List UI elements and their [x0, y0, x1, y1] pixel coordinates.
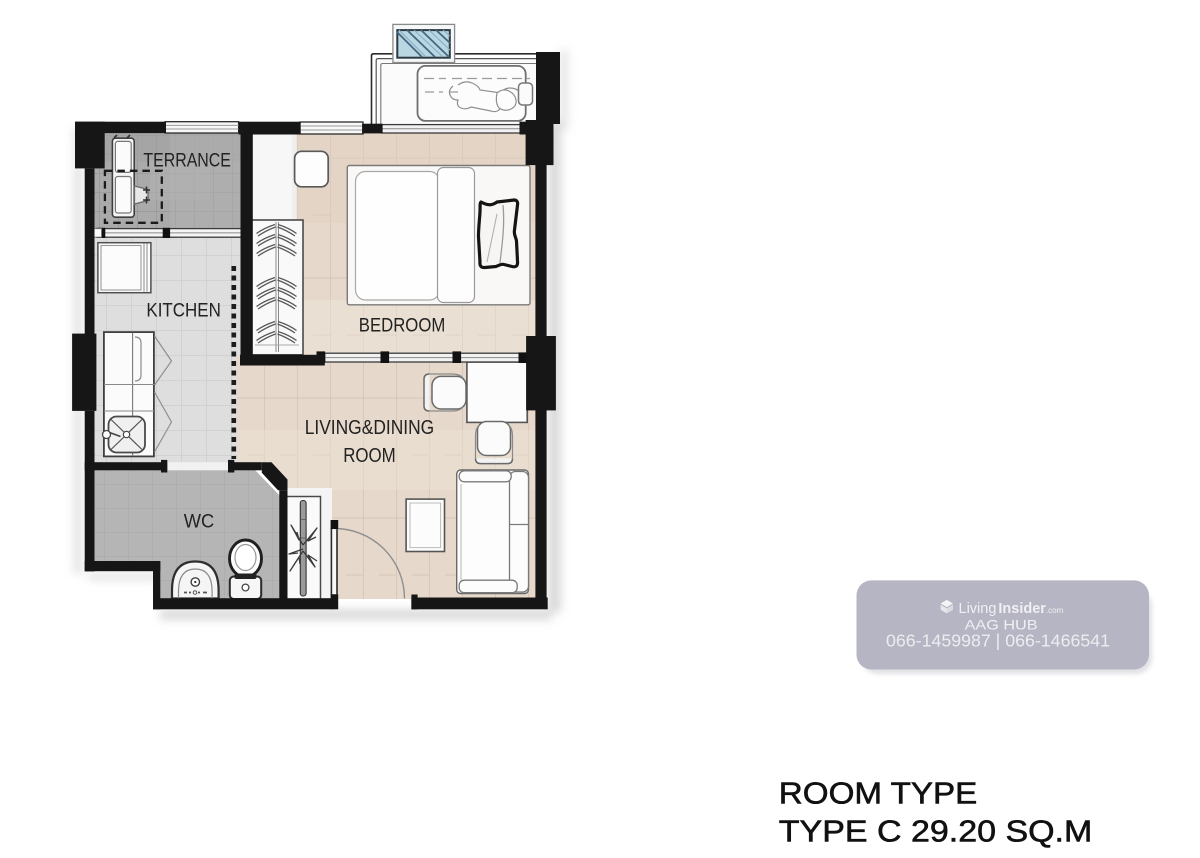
svg-text:WC: WC: [184, 511, 215, 533]
svg-text:TYPE C 29.20 SQ.M: TYPE C 29.20 SQ.M: [779, 814, 1093, 849]
svg-text:066-1459987 | 066-1466541: 066-1459987 | 066-1466541: [886, 631, 1110, 651]
svg-text:KITCHEN: KITCHEN: [146, 300, 221, 322]
svg-text:TERRANCE: TERRANCE: [143, 150, 231, 172]
svg-text:LIVING&DINING: LIVING&DINING: [305, 416, 435, 439]
svg-text:ROOM: ROOM: [343, 444, 396, 467]
svg-text:ROOM TYPE: ROOM TYPE: [779, 776, 978, 811]
svg-text:BEDROOM: BEDROOM: [359, 315, 446, 337]
